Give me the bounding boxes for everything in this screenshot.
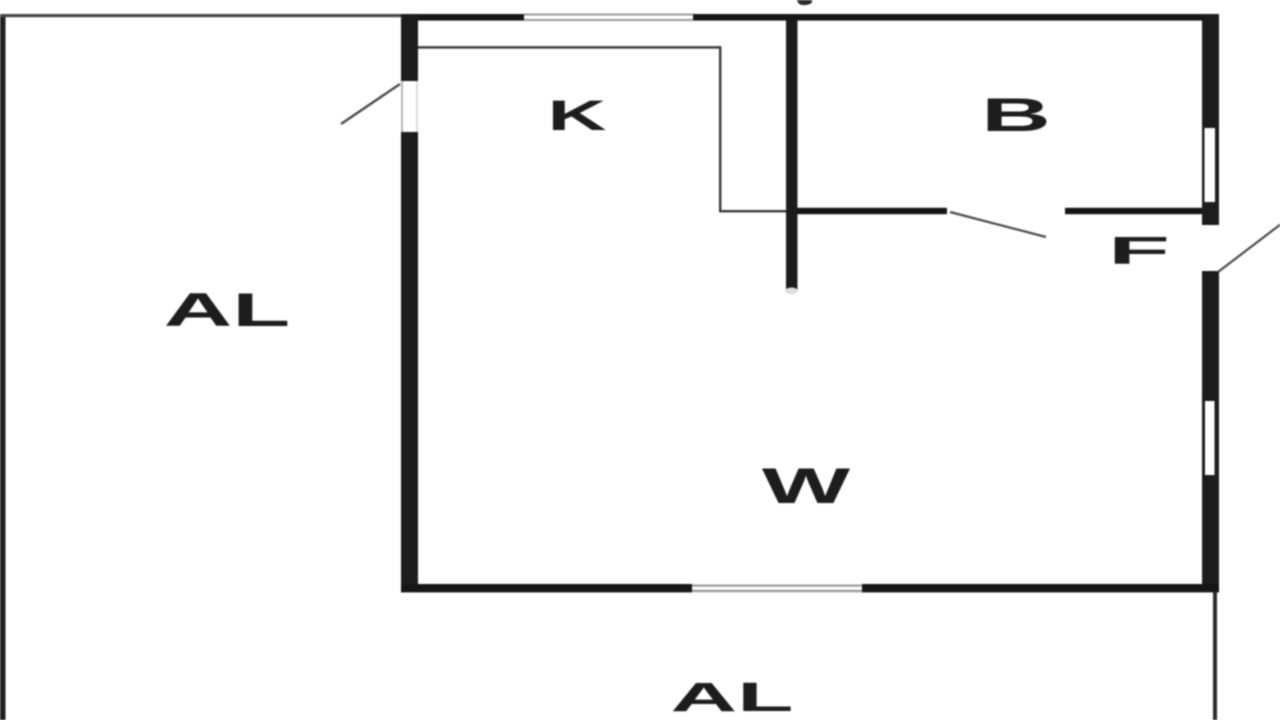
svg-text:W: W: [762, 458, 851, 514]
svg-text:B: B: [981, 89, 1051, 142]
svg-text:AL: AL: [671, 674, 794, 720]
svg-text:AL: AL: [164, 283, 291, 336]
svg-text:K: K: [548, 91, 607, 139]
svg-text:F: F: [1108, 229, 1170, 273]
